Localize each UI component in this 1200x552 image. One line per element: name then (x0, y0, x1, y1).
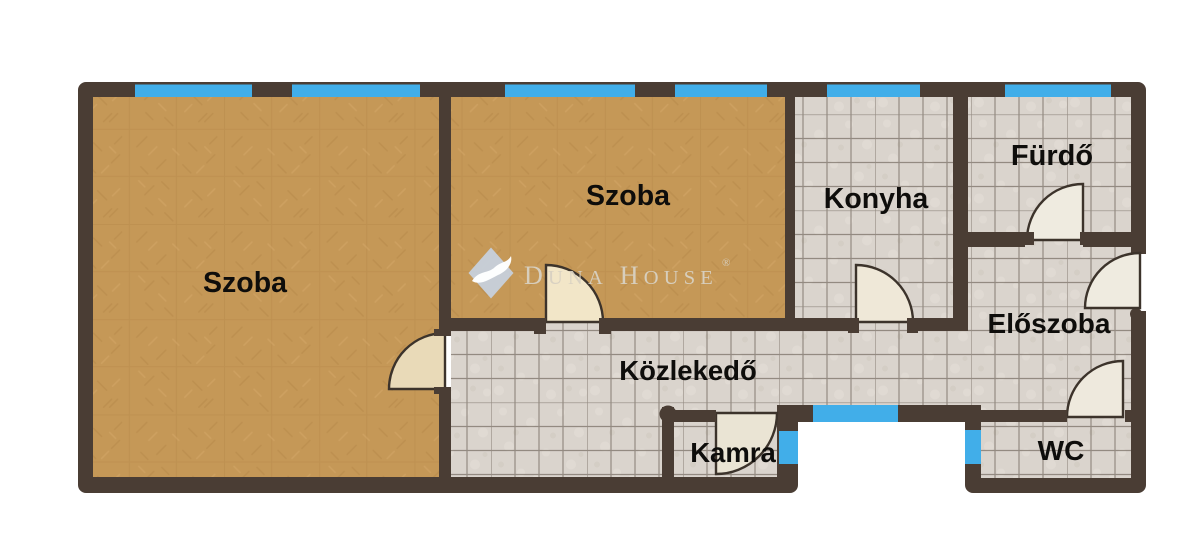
svg-text:Előszoba: Előszoba (988, 308, 1111, 339)
svg-text:Kamra: Kamra (690, 437, 776, 468)
svg-text:®: ® (722, 257, 730, 269)
svg-text:Fürdő: Fürdő (1011, 140, 1093, 172)
svg-text:Közlekedő: Közlekedő (619, 355, 757, 386)
svg-text:WC: WC (1038, 435, 1085, 466)
svg-text:Szoba: Szoba (203, 267, 288, 299)
svg-text:Szoba: Szoba (586, 180, 671, 212)
svg-text:Konyha: Konyha (824, 183, 930, 215)
